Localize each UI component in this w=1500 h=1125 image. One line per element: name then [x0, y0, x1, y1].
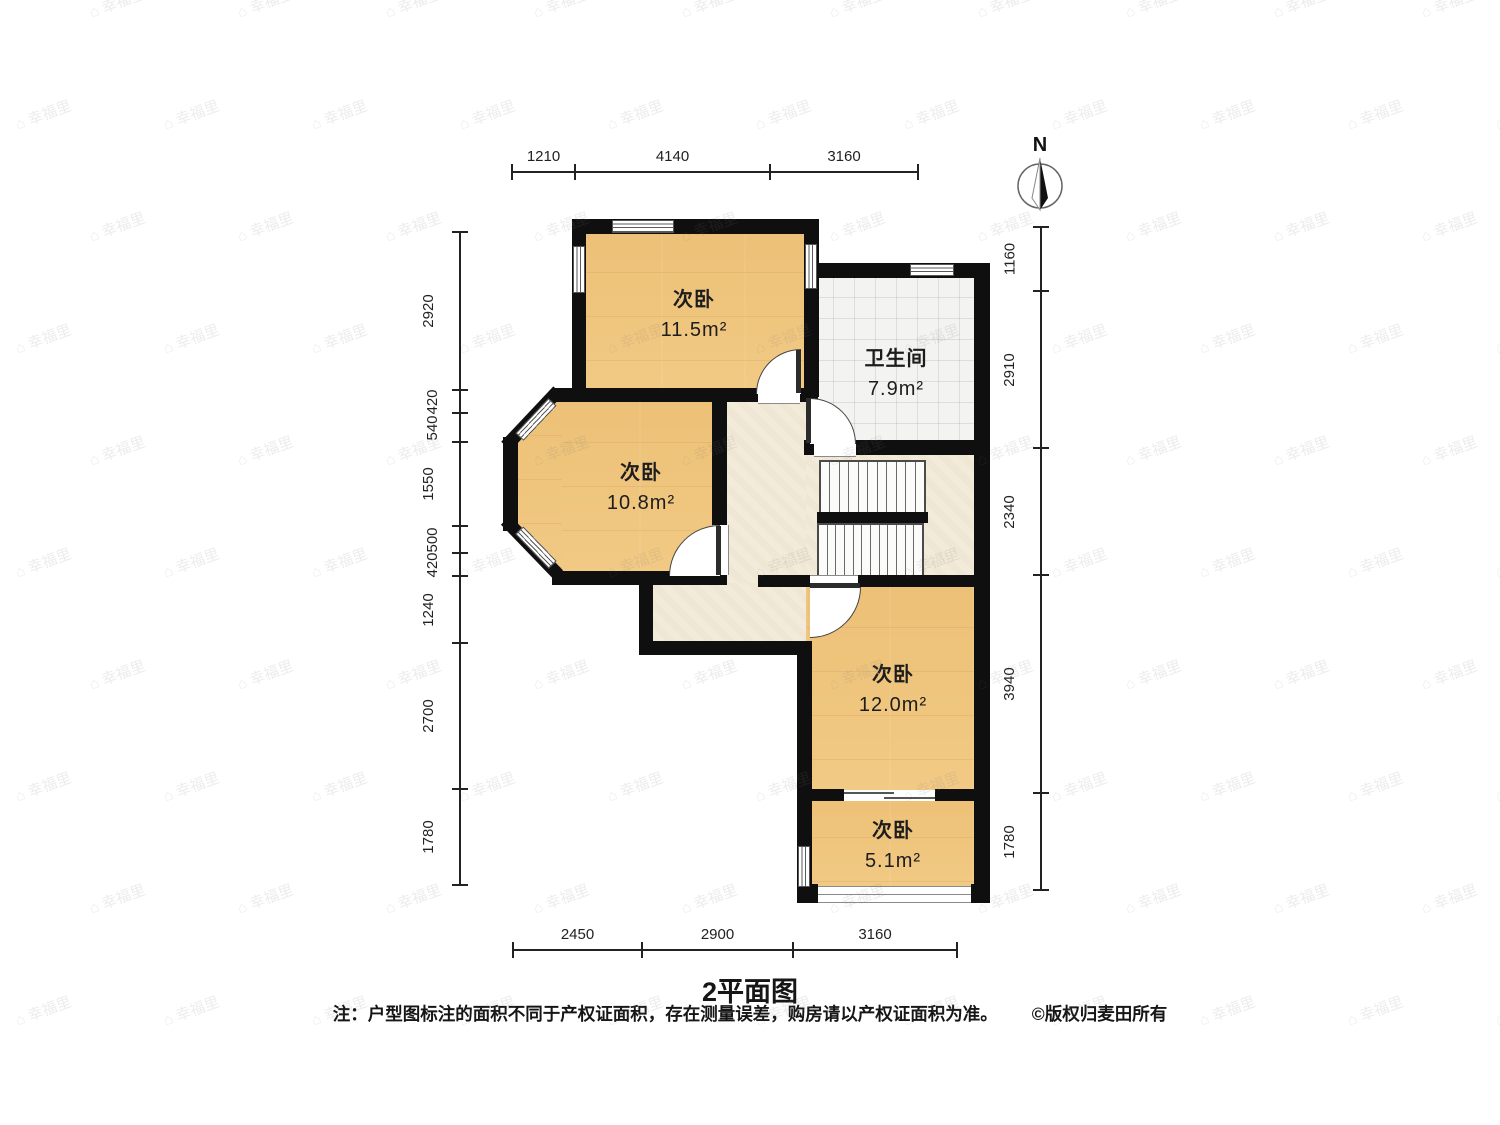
watermark-mark: ⌂ 幸福里	[1048, 95, 1110, 135]
dim-tick	[511, 164, 513, 180]
dim-label-left: 420	[424, 389, 441, 414]
label-bedroom-right: 次卧 12.0m²	[803, 660, 983, 720]
wall-top	[572, 219, 819, 234]
dim-tick	[1033, 290, 1049, 292]
dim-label-right: 1160	[1001, 243, 1018, 275]
stair-tread	[836, 525, 845, 578]
wall-bathroom-top	[812, 263, 988, 278]
dim-tick	[512, 942, 514, 958]
wall-bed-divider-right	[935, 789, 976, 801]
stair-tread	[888, 525, 897, 578]
watermark-mark: ⌂ 幸福里	[86, 207, 148, 247]
wall-bottom-corner-right	[971, 884, 990, 903]
watermark-mark: ⌂ 幸福里	[308, 543, 370, 583]
sliding-door-leaf-1	[844, 792, 894, 794]
watermark-mark: ⌂ 幸福里	[160, 543, 222, 583]
window-small-bottom	[818, 886, 971, 903]
watermark-mark: ⌂ 幸福里	[456, 767, 518, 807]
dim-tick	[452, 525, 468, 527]
watermark-mark: ⌂ 幸福里	[308, 767, 370, 807]
dim-tick	[452, 552, 468, 554]
stair-tread	[906, 525, 915, 578]
watermark-mark: ⌂ 幸福里	[1048, 543, 1110, 583]
dim-line-top	[512, 171, 918, 173]
watermark-mark: ⌂ 幸福里	[1270, 879, 1332, 919]
dim-label-right: 2910	[1001, 353, 1018, 386]
stair-tread	[887, 462, 896, 512]
dim-label-left: 1550	[420, 467, 437, 500]
watermark-mark: ⌂ 幸福里	[1270, 0, 1332, 22]
watermark-mark: ⌂ 幸福里	[604, 767, 666, 807]
watermark-mark: ⌂ 幸福里	[1196, 95, 1258, 135]
stair-tread	[916, 462, 924, 512]
watermark-mark: ⌂ 幸福里	[826, 207, 888, 247]
door-bedroom-right-leaf	[810, 583, 860, 588]
compass: N	[1008, 134, 1072, 214]
dim-label-bottom: 3160	[858, 926, 891, 943]
watermark-mark: ⌂ 幸福里	[12, 767, 74, 807]
watermark-mark: ⌂ 幸福里	[234, 655, 296, 695]
watermark-mark: ⌂ 幸福里	[974, 0, 1036, 22]
room-area: 12.0m²	[803, 690, 983, 720]
dim-label-bottom: 2450	[561, 926, 594, 943]
dim-line-bottom	[513, 949, 957, 951]
wall-stairs-bottom-right	[858, 575, 976, 587]
watermark-mark: ⌂ 幸福里	[382, 207, 444, 247]
watermark-mark: ⌂ 幸福里	[1344, 319, 1406, 359]
stairs-upper-flight	[819, 460, 926, 514]
watermark-mark: ⌂ 幸福里	[1122, 207, 1184, 247]
stair-tread	[914, 525, 922, 578]
watermark-mark: ⌂ 幸福里	[1122, 0, 1184, 22]
stair-tread	[906, 462, 915, 512]
watermark-mark: ⌂ 幸福里	[1418, 0, 1480, 22]
door-bedroom-middle-leaf	[716, 526, 721, 575]
stair-tread	[830, 462, 839, 512]
dim-label-right: 3940	[1001, 667, 1018, 700]
watermark-mark: ⌂ 幸福里	[604, 95, 666, 135]
dim-label-top: 3160	[827, 148, 860, 165]
window-bathroom-top	[910, 264, 954, 276]
dim-label-top: 1210	[527, 148, 560, 165]
watermark-mark: ⌂ 幸福里	[12, 95, 74, 135]
watermark-mark: ⌂ 幸福里	[1418, 207, 1480, 247]
watermark-mark: ⌂ 幸福里	[678, 0, 740, 22]
dim-tick	[1033, 447, 1049, 449]
watermark-mark: ⌂ 幸福里	[86, 879, 148, 919]
wall-bed-top-bottom	[552, 388, 760, 402]
dim-label-left: 2920	[420, 294, 437, 327]
wall-hall-bottom	[639, 641, 804, 655]
dim-line-right	[1040, 227, 1042, 890]
dim-tick	[452, 642, 468, 644]
copyright-note: ©版权归麦田所有	[1032, 1001, 1167, 1026]
watermark-mark: ⌂ 幸福里	[1196, 319, 1258, 359]
dim-tick	[452, 441, 468, 443]
wall-bed-divider-left	[804, 789, 844, 801]
watermark-mark: ⌂ 幸福里	[1122, 879, 1184, 919]
watermark-mark: ⌂ 幸福里	[530, 879, 592, 919]
stair-tread	[878, 462, 887, 512]
room-name: 次卧	[604, 285, 784, 315]
watermark-mark: ⌂ 幸福里	[1122, 655, 1184, 695]
watermark-mark: ⌂ 幸福里	[160, 95, 222, 135]
watermark-mark: ⌂ 幸福里	[530, 0, 592, 22]
stair-tread	[880, 525, 889, 578]
watermark-mark: ⌂ 幸福里	[234, 0, 296, 22]
watermark-mark: ⌂ 幸福里	[826, 0, 888, 22]
stair-tread	[854, 525, 863, 578]
watermark-mark: ⌂ 幸福里	[456, 319, 518, 359]
watermark-mark: ⌂ 幸福里	[160, 767, 222, 807]
dim-tick	[1033, 889, 1049, 891]
stairs-lower-flight	[817, 523, 924, 580]
label-bathroom: 卫生间 7.9m²	[806, 344, 986, 404]
sliding-door	[844, 790, 935, 801]
dim-tick	[452, 231, 468, 233]
dim-label-left: 500	[424, 527, 441, 552]
watermark-mark: ⌂ 幸福里	[1492, 319, 1500, 359]
label-bedroom-middle: 次卧 10.8m²	[551, 458, 731, 518]
dim-label-top: 4140	[656, 148, 689, 165]
watermark-mark: ⌂ 幸福里	[1492, 543, 1500, 583]
dim-tick	[769, 164, 771, 180]
room-name: 次卧	[803, 660, 983, 690]
stair-tread	[849, 462, 858, 512]
stair-tread	[828, 525, 837, 578]
room-name: 卫生间	[806, 344, 986, 374]
footnote-row: 注：户型图标注的面积不同于产权证面积，存在测量误差，购房请以产权证面积为准。 ©…	[0, 1001, 1500, 1026]
watermark-mark: ⌂ 幸福里	[456, 95, 518, 135]
dim-label-left: 420	[424, 552, 441, 577]
watermark-mark: ⌂ 幸福里	[308, 95, 370, 135]
dim-tick	[1033, 226, 1049, 228]
watermark-mark: ⌂ 幸福里	[86, 431, 148, 471]
watermark-mark: ⌂ 幸福里	[1418, 879, 1480, 919]
watermark-mark: ⌂ 幸福里	[1048, 767, 1110, 807]
watermark-mark: ⌂ 幸福里	[1418, 655, 1480, 695]
watermark-mark: ⌂ 幸福里	[678, 879, 740, 919]
dim-label-right: 2340	[1001, 495, 1018, 528]
stair-tread	[840, 462, 849, 512]
room-name: 次卧	[803, 816, 983, 846]
dim-tick	[917, 164, 919, 180]
dim-tick	[792, 942, 794, 958]
sliding-door-leaf-2	[884, 797, 935, 799]
room-area: 10.8m²	[551, 488, 731, 518]
stair-tread	[862, 525, 871, 578]
stair-tread	[868, 462, 877, 512]
dim-tick	[574, 164, 576, 180]
dim-tick	[956, 942, 958, 958]
room-name: 次卧	[551, 458, 731, 488]
watermark-mark: ⌂ 幸福里	[752, 95, 814, 135]
watermark-mark: ⌂ 幸福里	[382, 879, 444, 919]
dim-tick	[452, 575, 468, 577]
dim-tick	[1033, 792, 1049, 794]
watermark-mark: ⌂ 幸福里	[1418, 431, 1480, 471]
room-area: 5.1m²	[803, 846, 983, 876]
watermark-mark: ⌂ 幸福里	[1196, 543, 1258, 583]
stair-tread	[897, 525, 906, 578]
dim-tick	[641, 942, 643, 958]
watermark-mark: ⌂ 幸福里	[12, 319, 74, 359]
dim-label-left: 540	[424, 415, 441, 440]
window-left-wall	[573, 246, 585, 293]
compass-icon	[1008, 154, 1072, 214]
watermark-mark: ⌂ 幸福里	[382, 0, 444, 22]
wall-bathroom-bottom	[856, 440, 976, 455]
stair-tread	[871, 525, 880, 578]
stairs-divider-wall	[817, 512, 928, 523]
watermark-mark: ⌂ 幸福里	[1492, 95, 1500, 135]
watermark-mark: ⌂ 幸福里	[1344, 95, 1406, 135]
watermark-mark: ⌂ 幸福里	[678, 655, 740, 695]
label-bedroom-top: 次卧 11.5m²	[604, 285, 784, 345]
dim-tick	[452, 788, 468, 790]
watermark-mark: ⌂ 幸福里	[86, 0, 148, 22]
dim-tick	[452, 412, 468, 414]
watermark-mark: ⌂ 幸福里	[1048, 319, 1110, 359]
stair-tread	[819, 525, 828, 578]
watermark-mark: ⌂ 幸福里	[308, 319, 370, 359]
door-bathroom-leaf	[806, 398, 811, 443]
watermark-mark: ⌂ 幸福里	[530, 655, 592, 695]
window-bed-top-right	[805, 244, 817, 289]
watermark-mark: ⌂ 幸福里	[1270, 207, 1332, 247]
stair-tread	[897, 462, 906, 512]
watermark-mark: ⌂ 幸福里	[1196, 767, 1258, 807]
watermark-mark: ⌂ 幸福里	[1270, 655, 1332, 695]
window-top-wall	[612, 220, 674, 233]
watermark-mark: ⌂ 幸福里	[12, 543, 74, 583]
dim-label-left: 2700	[420, 699, 437, 732]
watermark-mark: ⌂ 幸福里	[1344, 543, 1406, 583]
stair-tread	[821, 462, 830, 512]
disclaimer-note: 注：户型图标注的面积不同于产权证面积，存在测量误差，购房请以产权证面积为准。	[333, 1001, 998, 1026]
watermark-mark: ⌂ 幸福里	[234, 207, 296, 247]
watermark-mark: ⌂ 幸福里	[900, 95, 962, 135]
dim-label-left: 1240	[420, 593, 437, 626]
watermark-mark: ⌂ 幸福里	[234, 879, 296, 919]
room-area: 7.9m²	[806, 374, 986, 404]
room-area: 11.5m²	[604, 315, 784, 345]
dim-tick	[452, 884, 468, 886]
stair-tread	[845, 525, 854, 578]
door-bedroom-top-leaf	[796, 350, 801, 393]
watermark-mark: ⌂ 幸福里	[160, 319, 222, 359]
dim-label-right: 1780	[1001, 825, 1018, 858]
dim-tick	[452, 389, 468, 391]
watermark-mark: ⌂ 幸福里	[1122, 431, 1184, 471]
hall-floor	[721, 395, 814, 585]
watermark-mark: ⌂ 幸福里	[234, 431, 296, 471]
dim-label-left: 1780	[420, 820, 437, 853]
dim-tick	[1033, 574, 1049, 576]
watermark-mark: ⌂ 幸福里	[1270, 431, 1332, 471]
floor-plan-page: 次卧 11.5m² 次卧 10.8m² 卫生间 7.9m² 次卧 12.0m² …	[0, 0, 1500, 1125]
watermark-mark: ⌂ 幸福里	[1492, 767, 1500, 807]
dim-label-bottom: 2900	[701, 926, 734, 943]
watermark-mark: ⌂ 幸福里	[86, 655, 148, 695]
window-small-bottom-line	[818, 894, 971, 895]
label-bedroom-small: 次卧 5.1m²	[803, 816, 983, 876]
hall-lower-floor	[651, 583, 806, 646]
stair-tread	[859, 462, 868, 512]
watermark-mark: ⌂ 幸福里	[1344, 767, 1406, 807]
watermark-mark: ⌂ 幸福里	[382, 655, 444, 695]
wall-stairs-bottom-left	[758, 575, 810, 587]
